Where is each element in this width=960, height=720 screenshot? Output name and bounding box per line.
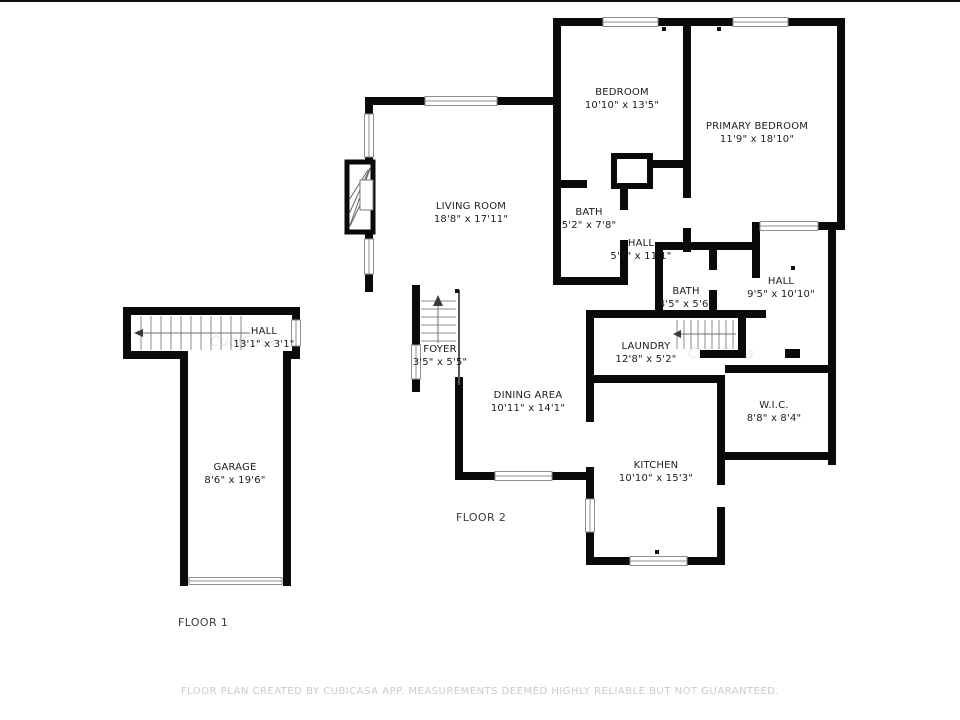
- kitchen-dims: 10'10" x 15'3": [619, 472, 693, 485]
- stairs-foyer: [421, 295, 456, 343]
- room-label-wic: W.I.C. 8'8" x 8'4": [747, 399, 802, 425]
- room-label-hall-upper: HALL 5'7" x 11'1": [610, 237, 671, 263]
- bath-upper-dims: 5'2" x 7'8": [562, 219, 617, 232]
- bath-middle-dims: 4'5" x 5'6": [659, 298, 714, 311]
- floor-plan-drawing: [0, 2, 960, 720]
- hall-upper-dims: 5'7" x 11'1": [610, 250, 671, 263]
- room-label-laundry: LAUNDRY 12'8" x 5'2": [615, 340, 676, 366]
- floor1-caption: FLOOR 1: [178, 616, 228, 629]
- bedroom-dims: 10'10" x 13'5": [585, 99, 659, 112]
- floor2-caption: FLOOR 2: [456, 511, 506, 524]
- room-label-primary-bedroom: PRIMARY BEDROOM 11'9" x 18'10": [706, 120, 808, 146]
- living-room-dims: 18'8" x 17'11": [434, 213, 508, 226]
- primary-bedroom-dims: 11'9" x 18'10": [706, 133, 808, 146]
- hall-right-name: HALL: [747, 275, 815, 288]
- garage-dims: 8'6" x 19'6": [204, 474, 265, 487]
- room-label-living-room: LIVING ROOM 18'8" x 17'11": [434, 200, 508, 226]
- foyer-dims: 3'5" x 5'5": [413, 356, 468, 369]
- living-room-name: LIVING ROOM: [434, 200, 508, 213]
- garage-name: GARAGE: [204, 461, 265, 474]
- stairs-laundry: [673, 320, 736, 349]
- bedroom-closet: [614, 156, 650, 186]
- bath-upper-name: BATH: [562, 206, 617, 219]
- watermark-text: CubiCasa: [210, 334, 276, 350]
- dining-area-name: DINING AREA: [491, 389, 565, 402]
- laundry-dims: 12'8" x 5'2": [615, 353, 676, 366]
- bath-middle-name: BATH: [659, 285, 714, 298]
- watermark-text: CubiCasa: [688, 346, 754, 362]
- foyer-name: FOYER: [413, 343, 468, 356]
- hall-upper-name: HALL: [610, 237, 671, 250]
- room-label-foyer: FOYER 3'5" x 5'5": [413, 343, 468, 369]
- laundry-name: LAUNDRY: [615, 340, 676, 353]
- primary-bedroom-name: PRIMARY BEDROOM: [706, 120, 808, 133]
- room-label-garage: GARAGE 8'6" x 19'6": [204, 461, 265, 487]
- room-label-bedroom: BEDROOM 10'10" x 13'5": [585, 86, 659, 112]
- room-label-bath-middle: BATH 4'5" x 5'6": [659, 285, 714, 311]
- room-label-hall-right: HALL 9'5" x 10'10": [747, 275, 815, 301]
- footer-disclaimer: FLOOR PLAN CREATED BY CUBICASA APP. MEAS…: [181, 686, 779, 697]
- floor-plan-canvas: BEDROOM 10'10" x 13'5" PRIMARY BEDROOM 1…: [0, 0, 960, 720]
- dining-area-dims: 10'11" x 14'1": [491, 402, 565, 415]
- room-label-dining-area: DINING AREA 10'11" x 14'1": [491, 389, 565, 415]
- room-label-kitchen: KITCHEN 10'10" x 15'3": [619, 459, 693, 485]
- wic-name: W.I.C.: [747, 399, 802, 412]
- wic-dims: 8'8" x 8'4": [747, 412, 802, 425]
- kitchen-name: KITCHEN: [619, 459, 693, 472]
- fireplace: [347, 150, 373, 232]
- bedroom-name: BEDROOM: [585, 86, 659, 99]
- room-label-bath-upper: BATH 5'2" x 7'8": [562, 206, 617, 232]
- hall-right-dims: 9'5" x 10'10": [747, 288, 815, 301]
